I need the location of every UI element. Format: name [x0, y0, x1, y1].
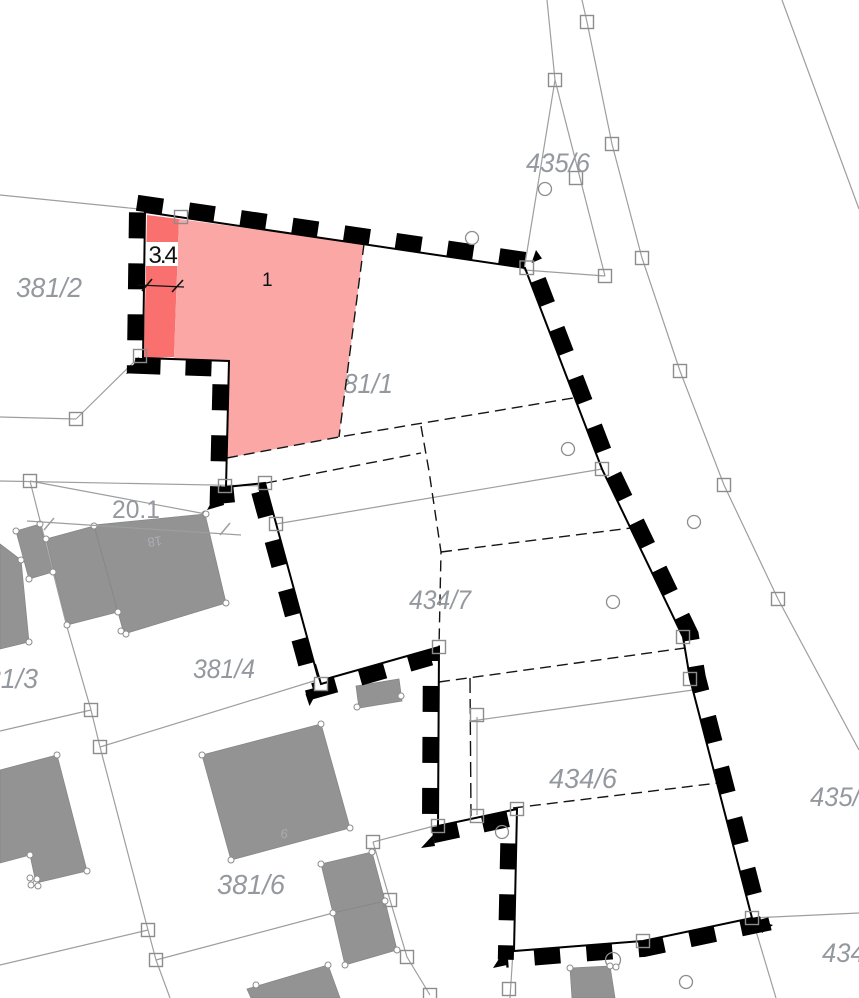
- svg-text:20.1: 20.1: [112, 496, 160, 524]
- svg-text:381/4: 381/4: [193, 654, 255, 684]
- svg-text:18: 18: [146, 533, 162, 550]
- svg-text:434/6: 434/6: [549, 763, 617, 794]
- svg-text:3.4: 3.4: [149, 242, 178, 269]
- svg-text:435/6: 435/6: [810, 782, 859, 812]
- svg-text:381/6: 381/6: [217, 869, 285, 900]
- svg-text:435/6: 435/6: [526, 148, 591, 178]
- svg-text:1: 1: [262, 270, 273, 291]
- svg-text:434/5: 434/5: [822, 938, 859, 968]
- svg-text:381/2: 381/2: [16, 272, 82, 303]
- svg-text:434/7: 434/7: [409, 585, 472, 615]
- svg-text:381/3: 381/3: [0, 663, 38, 694]
